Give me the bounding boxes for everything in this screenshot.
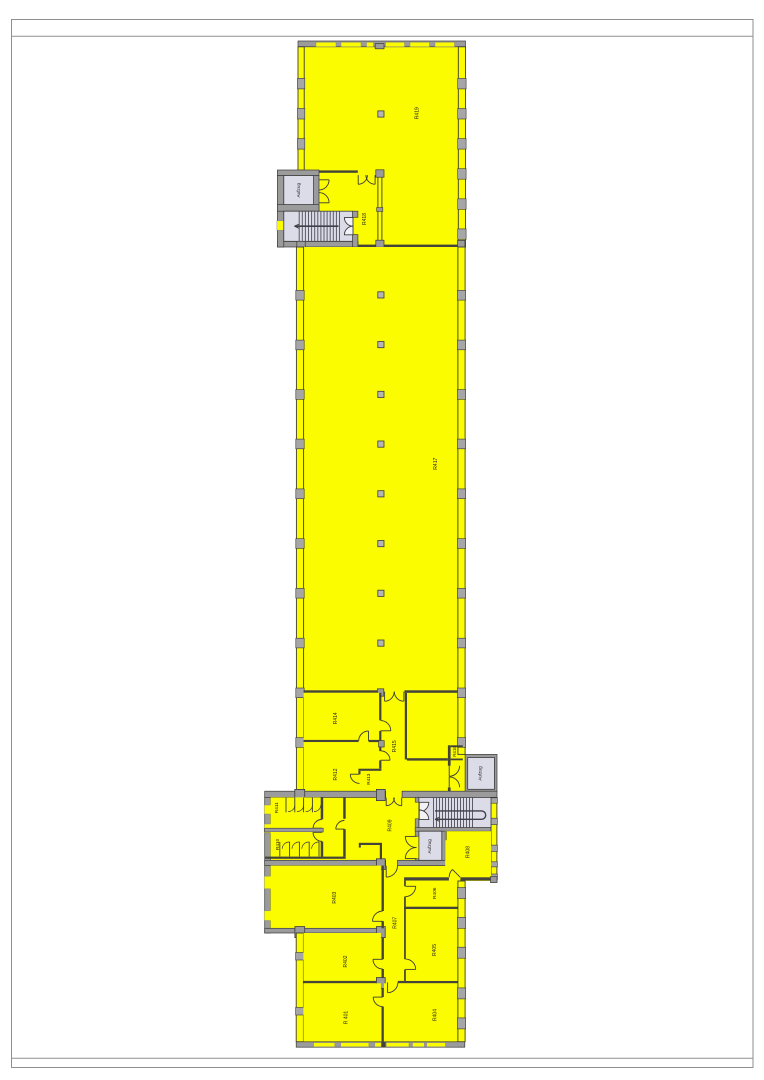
svg-text:R415: R415: [392, 740, 398, 752]
svg-text:R402: R402: [343, 955, 349, 967]
svg-text:R419: R419: [415, 107, 421, 119]
svg-text:R417: R417: [433, 457, 439, 469]
svg-text:Aufzug: Aufzug: [427, 839, 432, 854]
svg-text:Aufzug: Aufzug: [478, 766, 483, 781]
svg-text:R414: R414: [333, 712, 339, 724]
svg-text:R410: R410: [275, 838, 280, 850]
svg-text:R413: R413: [366, 773, 371, 785]
svg-text:R 401: R 401: [344, 1011, 350, 1025]
svg-text:R418: R418: [362, 213, 368, 225]
svg-text:R405: R405: [432, 944, 438, 956]
svg-text:Aufzug: Aufzug: [296, 183, 301, 198]
svg-text:R406: R406: [432, 887, 438, 899]
svg-text:R412: R412: [333, 768, 339, 780]
svg-text:R408: R408: [466, 846, 472, 858]
svg-text:R403: R403: [332, 892, 338, 904]
svg-text:R407: R407: [393, 917, 399, 929]
svg-text:R404: R404: [433, 1009, 439, 1021]
svg-text:R409: R409: [388, 819, 394, 831]
svg-text:R411: R411: [274, 802, 279, 813]
svg-text:R416: R416: [452, 746, 457, 757]
